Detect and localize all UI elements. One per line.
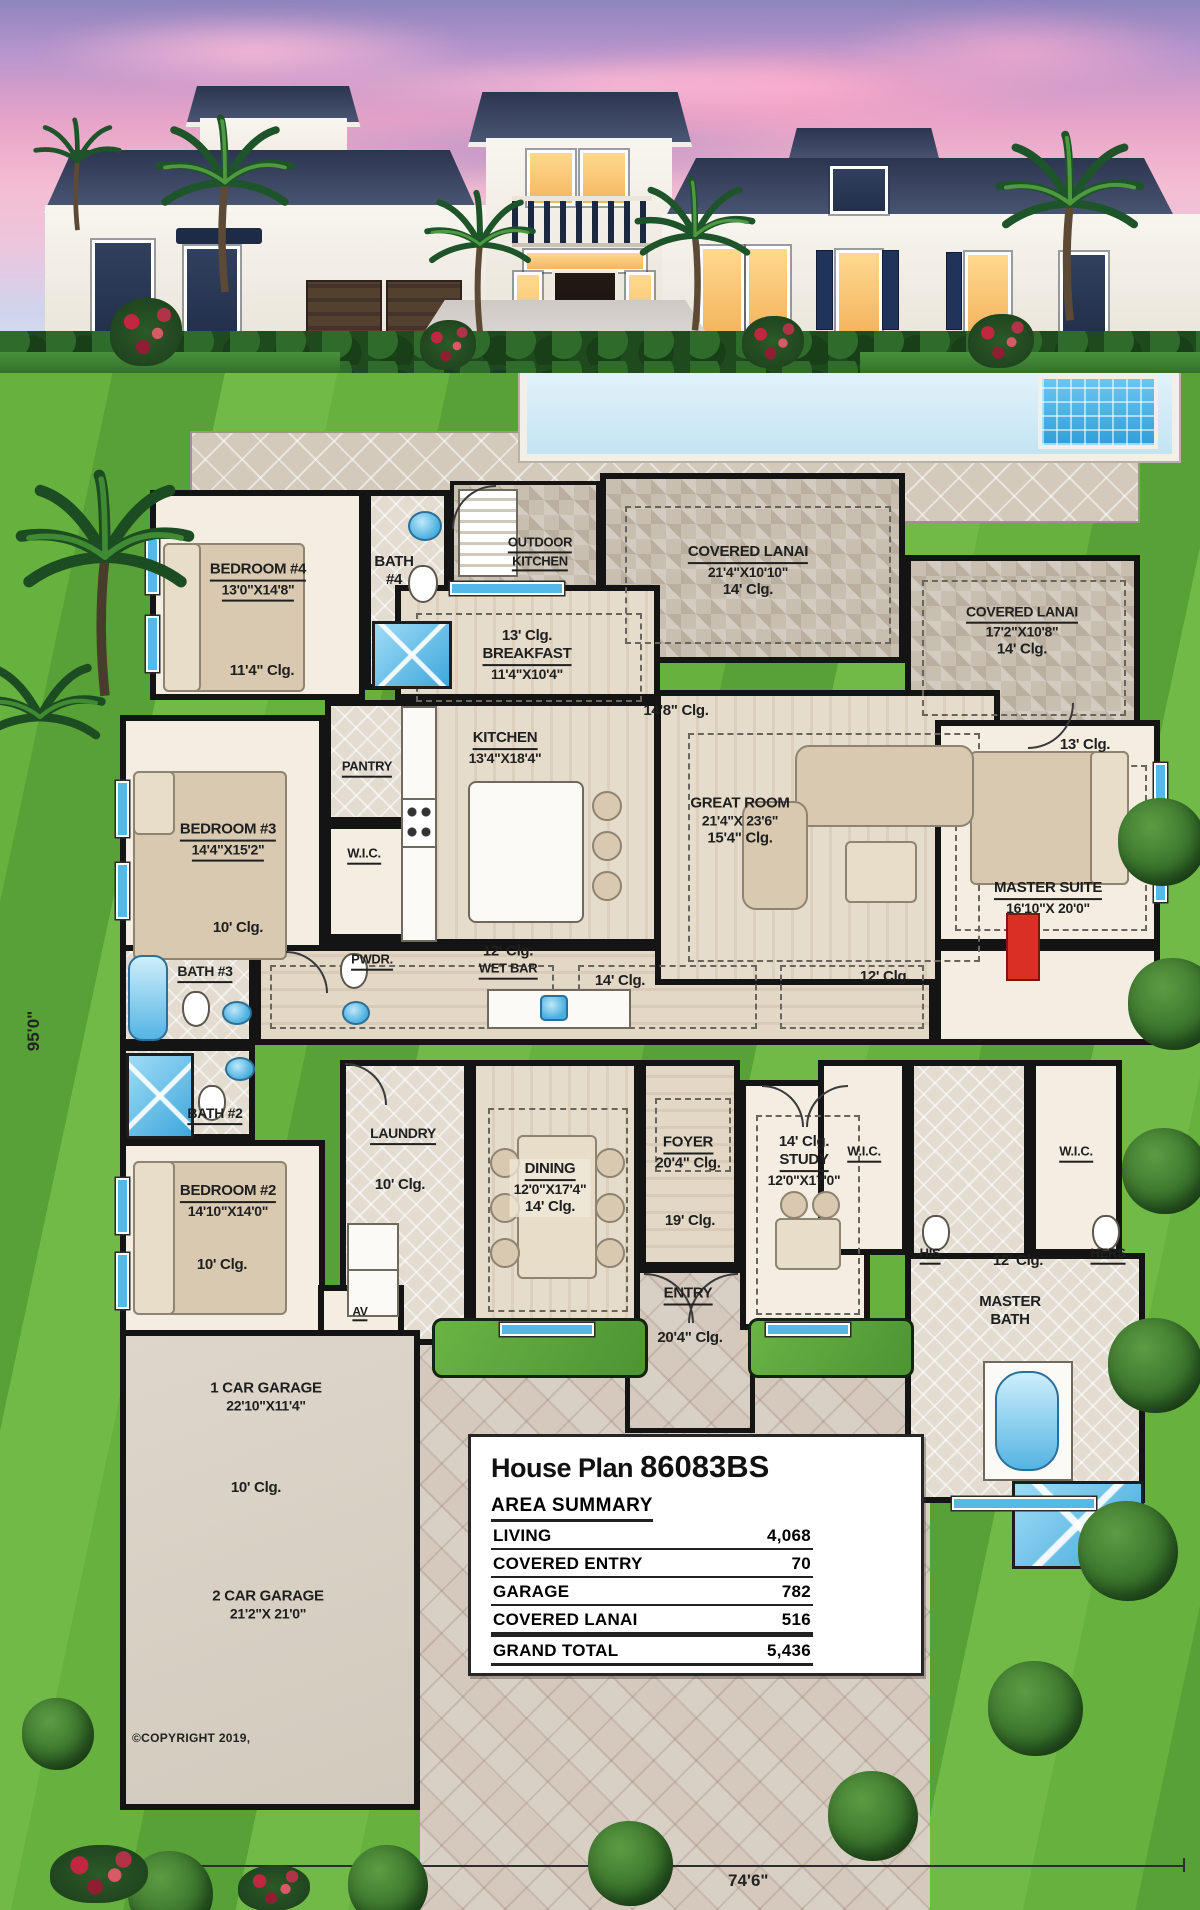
row-label: COVERED ENTRY xyxy=(493,1554,643,1574)
tree xyxy=(1122,1128,1200,1214)
label-garage-clg: 10' Clg. xyxy=(231,1479,281,1497)
fireplace xyxy=(1006,913,1040,981)
window xyxy=(952,1497,1096,1510)
stool xyxy=(592,791,622,821)
label-entry: ENTRY xyxy=(664,1285,713,1306)
label-wet-bar: 12' Clg. WET BAR xyxy=(479,943,538,980)
area-summary-heading: AREA SUMMARY xyxy=(491,1495,653,1522)
flower-bush xyxy=(238,1865,310,1910)
dimension-bottom: 74'6" xyxy=(728,1871,768,1891)
page: BEDROOM #4 13'0"X14'8" 11'4" Clg. BATH#4… xyxy=(0,0,1200,1910)
label-bedroom-4-clg: 11'4" Clg. xyxy=(230,662,294,680)
label-entry-clg: 20'4" Clg. xyxy=(657,1329,722,1347)
window xyxy=(830,166,888,214)
shutter xyxy=(816,250,833,330)
toilet xyxy=(182,991,210,1027)
window xyxy=(450,582,564,595)
window xyxy=(766,1323,850,1336)
label-laundry: LAUNDRY xyxy=(370,1125,436,1145)
row-label: GARAGE xyxy=(493,1582,569,1602)
shutter xyxy=(882,250,899,330)
dimension-left: 95'0" xyxy=(24,1011,44,1051)
label-dining: DINING 12'0"X17'4" 14' Clg. xyxy=(510,1159,591,1217)
palm-tree xyxy=(150,100,300,310)
study-chair xyxy=(780,1191,808,1219)
palm-tree xyxy=(630,165,760,345)
label-lanai-right: COVERED LANAI 17'2"X10'8" 14' Clg. xyxy=(966,604,1078,659)
tree xyxy=(988,1661,1083,1756)
floor-plan: BEDROOM #4 13'0"X14'8" 11'4" Clg. BATH#4… xyxy=(0,373,1200,1910)
plan-number: 86083BS xyxy=(640,1449,769,1484)
label-laundry-clg: 10' Clg. xyxy=(375,1176,425,1194)
summary-row: COVERED LANAI516 xyxy=(491,1606,813,1634)
tree xyxy=(1078,1501,1178,1601)
label-bath-3: BATH #3 xyxy=(177,963,232,983)
row-label: LIVING xyxy=(493,1526,551,1546)
label-master-suite: MASTER SUITE 16'10"X 20'0" xyxy=(994,879,1102,917)
label-study: 14' Clg. STUDY 12'0"X17'0" xyxy=(768,1133,841,1189)
kitchen-island xyxy=(468,781,584,923)
row-label: COVERED LANAI xyxy=(493,1610,638,1630)
master-tub xyxy=(995,1371,1059,1471)
sink xyxy=(408,511,442,541)
label-bath-4: BATH#4 xyxy=(374,553,413,589)
window xyxy=(116,1253,129,1309)
label-bedroom-3-clg: 10' Clg. xyxy=(213,919,263,937)
shower xyxy=(372,621,452,689)
row-value: 782 xyxy=(782,1582,811,1602)
label-pantry: PANTRY xyxy=(342,759,392,778)
row-value: 4,068 xyxy=(767,1526,811,1546)
summary-row: LIVING4,068 xyxy=(491,1522,813,1550)
label-master-hall-clg: 12' Clg. xyxy=(860,968,910,986)
room-wic-bed3 xyxy=(325,823,410,940)
sink xyxy=(222,1001,252,1025)
label-bath-2: BATH #2 xyxy=(187,1105,242,1125)
summary-row-total: GRAND TOTAL5,436 xyxy=(491,1634,813,1666)
label-bedroom-2-clg: 10' Clg. xyxy=(197,1256,247,1274)
label-great-room-clg-upper: 14'8" Clg. xyxy=(643,702,708,720)
label-foyer-clg2: 19' Clg. xyxy=(665,1212,715,1230)
dining-chair xyxy=(595,1148,625,1178)
label-great-room: GREAT ROOM 21'4"X 23'6" 15'4" Clg. xyxy=(690,795,789,848)
label-foyer: FOYER 20'4" Clg. xyxy=(655,1134,720,1173)
washer-dryer xyxy=(347,1223,399,1271)
summary-row: COVERED ENTRY70 xyxy=(491,1550,813,1578)
sink xyxy=(225,1057,255,1081)
plan-title: House Plan 86083BS xyxy=(491,1449,901,1485)
range xyxy=(401,798,437,848)
bed-pillows xyxy=(133,1161,175,1315)
label-kitchen: KITCHEN 13'4"X18'4" xyxy=(469,729,542,767)
lawn xyxy=(860,352,1200,373)
label-garage-2: 2 CAR GARAGE 21'2"X 21'0" xyxy=(212,1588,323,1623)
window xyxy=(836,250,882,334)
house-photo xyxy=(0,0,1200,373)
tree xyxy=(828,1771,918,1861)
label-wic-his: W.I.C. xyxy=(847,1144,881,1163)
study-table xyxy=(775,1218,841,1270)
label-av: AV xyxy=(352,1304,367,1321)
wet-bar-sink xyxy=(540,995,568,1021)
flower-bush xyxy=(50,1845,148,1903)
shutter xyxy=(946,252,962,330)
plan-title-prefix: House Plan xyxy=(491,1453,633,1483)
sofa xyxy=(795,745,974,827)
dining-chair xyxy=(595,1193,625,1223)
copyright-text: ©COPYRIGHT 2019, xyxy=(132,1731,250,1745)
dining-chair xyxy=(490,1238,520,1268)
tree xyxy=(22,1698,94,1770)
shower xyxy=(126,1053,194,1139)
label-wic-bed3: W.I.C. xyxy=(347,846,381,865)
spa xyxy=(1038,375,1158,449)
transom-window xyxy=(524,250,646,272)
row-value: 516 xyxy=(782,1610,811,1630)
palm-tree xyxy=(990,120,1150,335)
label-outdoor-kitchen: OUTDOOR KITCHEN xyxy=(508,534,572,571)
label-wic-hers: W.I.C. xyxy=(1059,1144,1093,1163)
stool xyxy=(592,871,622,901)
window xyxy=(116,781,129,837)
label-bedroom-4: BEDROOM #4 13'0"X14'8" xyxy=(210,561,306,602)
tree xyxy=(348,1845,428,1910)
label-bedroom-3: BEDROOM #3 14'4"X15'2" xyxy=(180,821,276,862)
label-lanai-center: COVERED LANAI 21'4"X10'10" 14' Clg. xyxy=(688,543,808,599)
coffee-table xyxy=(845,841,917,903)
window xyxy=(116,863,129,919)
row-label: GRAND TOTAL xyxy=(493,1641,618,1661)
stool xyxy=(592,831,622,861)
sink xyxy=(342,1001,370,1025)
window xyxy=(500,1323,594,1336)
label-garage-1: 1 CAR GARAGE 22'10"X11'4" xyxy=(210,1380,321,1415)
bed-pillows xyxy=(133,771,175,835)
label-bedroom-2: BEDROOM #2 14'10"X14'0" xyxy=(180,1182,276,1220)
bathtub xyxy=(128,955,168,1041)
title-block: House Plan 86083BS AREA SUMMARY LIVING4,… xyxy=(468,1434,924,1676)
label-master-clg: 13' Clg. xyxy=(1060,736,1110,754)
summary-row: GARAGE782 xyxy=(491,1578,813,1606)
tree xyxy=(588,1821,673,1906)
label-hall-clg: 14' Clg. xyxy=(595,972,645,990)
dimension-tick xyxy=(1183,1858,1185,1872)
tree xyxy=(1118,798,1200,886)
study-chair xyxy=(812,1191,840,1219)
label-hers: HERS xyxy=(1091,1246,1126,1265)
label-breakfast: 13' Clg. BREAKFAST 11'4"X10'4" xyxy=(483,627,572,683)
palm-tree xyxy=(420,180,540,345)
dining-chair xyxy=(595,1238,625,1268)
palm-tree xyxy=(0,653,110,823)
row-value: 5,436 xyxy=(767,1641,811,1661)
label-his-hers-clg: 12' Clg. xyxy=(993,1252,1043,1270)
label-powder: PWDR. xyxy=(351,952,393,971)
tree xyxy=(1108,1318,1200,1413)
palm-tree xyxy=(30,110,125,240)
label-master-bath: MASTERBATH xyxy=(979,1293,1041,1329)
label-his: HIS xyxy=(920,1246,941,1265)
window xyxy=(116,1178,129,1234)
row-value: 70 xyxy=(791,1554,811,1574)
